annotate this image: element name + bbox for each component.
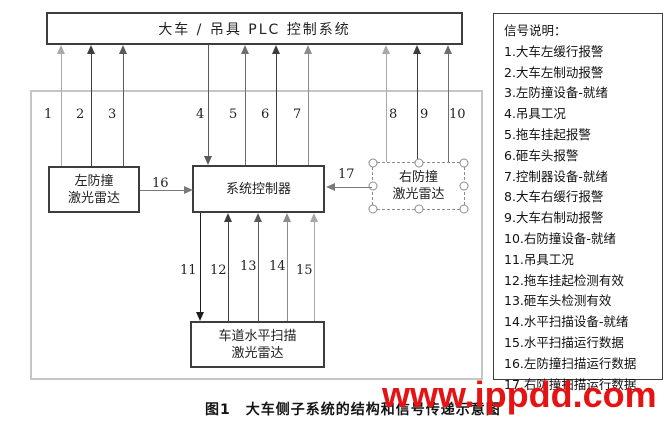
signal-line-2 <box>91 53 92 166</box>
signal-line-17 <box>335 187 372 188</box>
signal-number-label: 13 <box>240 259 257 274</box>
legend-title: 信号说明： <box>504 21 662 42</box>
signal-number-label: 9 <box>420 107 428 122</box>
left-radar-box: 左防撞 激光雷达 <box>48 166 140 213</box>
left-radar-label-line2: 激光雷达 <box>68 190 120 207</box>
arrow-right-icon <box>184 186 193 194</box>
signal-line-13 <box>258 221 259 321</box>
watermark: www.ippdd.com <box>382 377 657 413</box>
signal-line-7 <box>308 53 309 165</box>
signal-line-11 <box>200 213 201 312</box>
legend-item: 14.水平扫描设备-就绪 <box>504 312 662 333</box>
arrow-down-icon <box>204 156 212 165</box>
selection-handle[interactable] <box>414 205 423 214</box>
signal-number-label: 1 <box>44 107 52 122</box>
selection-handle[interactable] <box>460 159 469 168</box>
legend-item: 9.大车右制动报警 <box>504 208 662 229</box>
signal-number-label: 17 <box>338 167 355 182</box>
right-radar-box: 右防撞 激光雷达 <box>372 162 465 210</box>
signal-number-label: 3 <box>108 107 116 122</box>
signal-number-label: 16 <box>152 176 169 191</box>
signal-number-label: 15 <box>296 263 313 278</box>
selection-handle[interactable] <box>460 205 469 214</box>
legend-item: 4.吊具工况 <box>504 104 662 125</box>
signal-line-3 <box>123 53 124 166</box>
arrow-down-icon <box>196 312 204 321</box>
signal-number-label: 5 <box>229 107 237 122</box>
legend-panel: 信号说明： 1.大车左缓行报警 2.大车左制动报警 3.左防撞设备-就绪 4.吊… <box>493 13 663 380</box>
legend-item: 8.大车右缓行报警 <box>504 187 662 208</box>
legend-item: 7.控制器设备-就绪 <box>504 167 662 188</box>
selection-handle[interactable] <box>369 159 378 168</box>
signal-number-label: 6 <box>261 107 269 122</box>
signal-line-9 <box>417 53 418 162</box>
signal-line-5 <box>245 53 246 165</box>
signal-line-15 <box>314 221 315 321</box>
lane-scanner-box: 车道水平扫描 激光雷达 <box>190 321 325 368</box>
lane-scanner-label-line1: 车道水平扫描 <box>218 328 296 345</box>
legend-item: 3.左防撞设备-就绪 <box>504 83 662 104</box>
right-radar-label-line2: 激光雷达 <box>392 186 444 203</box>
signal-number-label: 7 <box>293 107 301 122</box>
legend-item: 13.砸车头检测有效 <box>504 291 662 312</box>
left-radar-label-line1: 左防撞 <box>74 173 113 190</box>
signal-number-label: 2 <box>76 107 84 122</box>
selection-handle[interactable] <box>414 159 423 168</box>
signal-number-label: 14 <box>269 259 286 274</box>
plc-control-system-box: 大车 / 吊具 PLC 控制系统 <box>46 12 463 45</box>
system-controller-box: 系统控制器 <box>192 165 325 213</box>
arrow-left-icon <box>326 183 335 191</box>
figure-canvas: 大车 / 吊具 PLC 控制系统 1 2 3 4 5 6 7 8 9 10 左防… <box>0 0 672 423</box>
selection-handle[interactable] <box>460 182 469 191</box>
signal-line-1 <box>61 53 62 166</box>
signal-number-label: 4 <box>196 107 204 122</box>
signal-line-14 <box>287 221 288 321</box>
signal-line-6 <box>276 53 277 165</box>
signal-number-label: 12 <box>210 263 227 278</box>
signal-line-12 <box>228 221 229 321</box>
selection-handle[interactable] <box>369 205 378 214</box>
legend-item: 15.水平扫描运行数据 <box>504 333 662 354</box>
right-radar-label-line1: 右防撞 <box>399 169 438 186</box>
plc-box-title: 大车 / 吊具 PLC 控制系统 <box>158 19 351 39</box>
legend-item: 11.吊具工况 <box>504 250 662 271</box>
lane-scanner-label-line2: 激光雷达 <box>231 345 283 362</box>
legend-item: 5.拖车挂起报警 <box>504 125 662 146</box>
legend-item: 6.砸车头报警 <box>504 146 662 167</box>
selection-handle[interactable] <box>369 182 378 191</box>
signal-number-label: 8 <box>389 107 397 122</box>
legend-item: 12.拖车挂起检测有效 <box>504 271 662 292</box>
signal-number-label: 10 <box>449 107 466 122</box>
legend-item: 1.大车左缓行报警 <box>504 42 662 63</box>
legend-item: 2.大车左制动报警 <box>504 63 662 84</box>
system-controller-label: 系统控制器 <box>226 181 291 198</box>
signal-line-8 <box>386 53 387 162</box>
signal-line-4 <box>208 45 209 156</box>
legend-item: 10.右防撞设备-就绪 <box>504 229 662 250</box>
signal-number-label: 11 <box>180 263 197 278</box>
legend-item: 16.左防撞扫描运行数据 <box>504 354 662 375</box>
